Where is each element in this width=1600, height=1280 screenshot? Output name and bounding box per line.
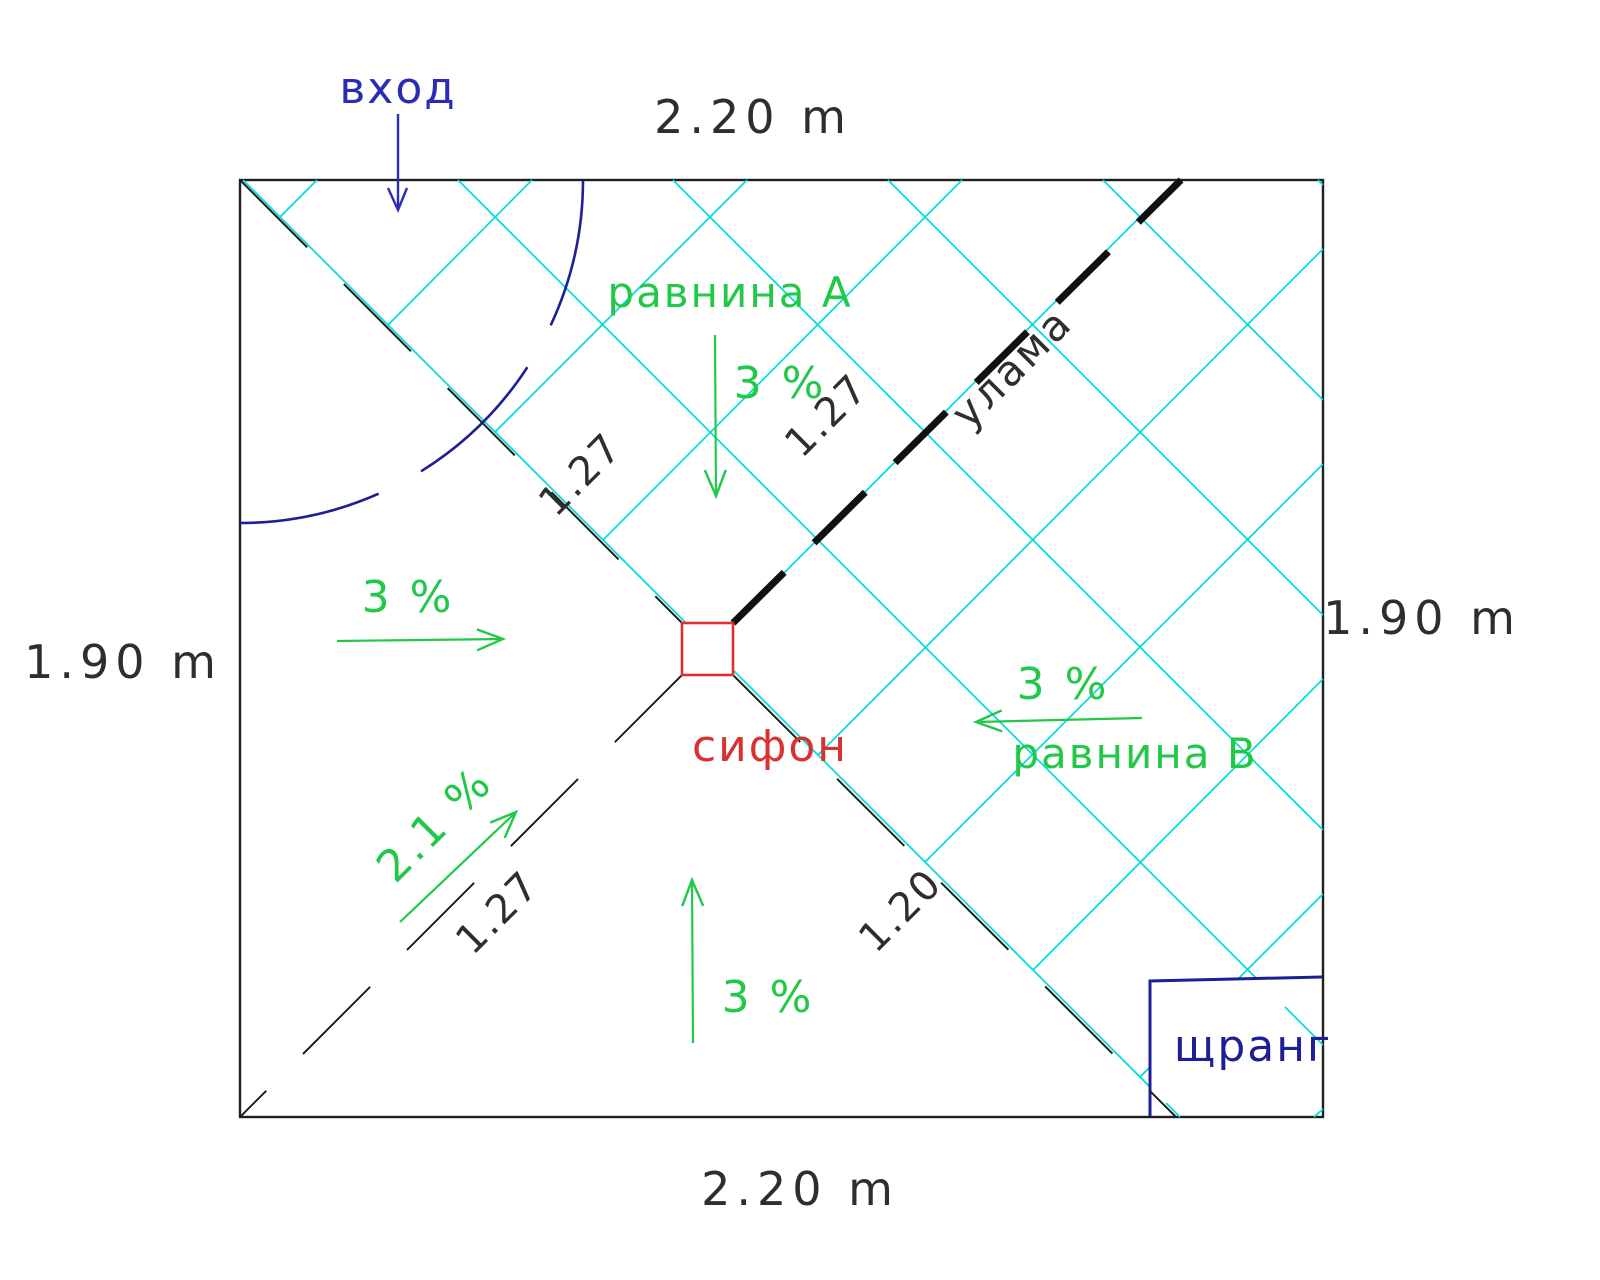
- entrance-label: вход: [339, 63, 456, 114]
- dimension-left: 1.90 m: [24, 635, 222, 689]
- riser-label: щранг: [1174, 1021, 1332, 1072]
- plane-a-label: равнина A: [607, 268, 852, 317]
- floor-plan-drawing: 2.20 m 2.20 m 1.90 m 1.90 m вход щранг с…: [0, 0, 1600, 1280]
- plane-b-label: равнина B: [1012, 729, 1257, 778]
- bottom-slope-arrow-icon: [692, 880, 693, 1043]
- dimension-bottom: 2.20 m: [701, 1162, 899, 1216]
- bottom-slope-label: 3 %: [722, 972, 815, 1023]
- dimension-right: 1.90 m: [1323, 591, 1521, 645]
- plane-b-slope-label: 3 %: [1017, 659, 1110, 710]
- dimension-top: 2.20 m: [654, 90, 852, 144]
- left-slope-label: 3 %: [362, 572, 455, 623]
- drain-square: [682, 623, 733, 675]
- plane-a-slope-arrow-icon: [715, 335, 716, 496]
- drain-label: сифон: [692, 721, 848, 772]
